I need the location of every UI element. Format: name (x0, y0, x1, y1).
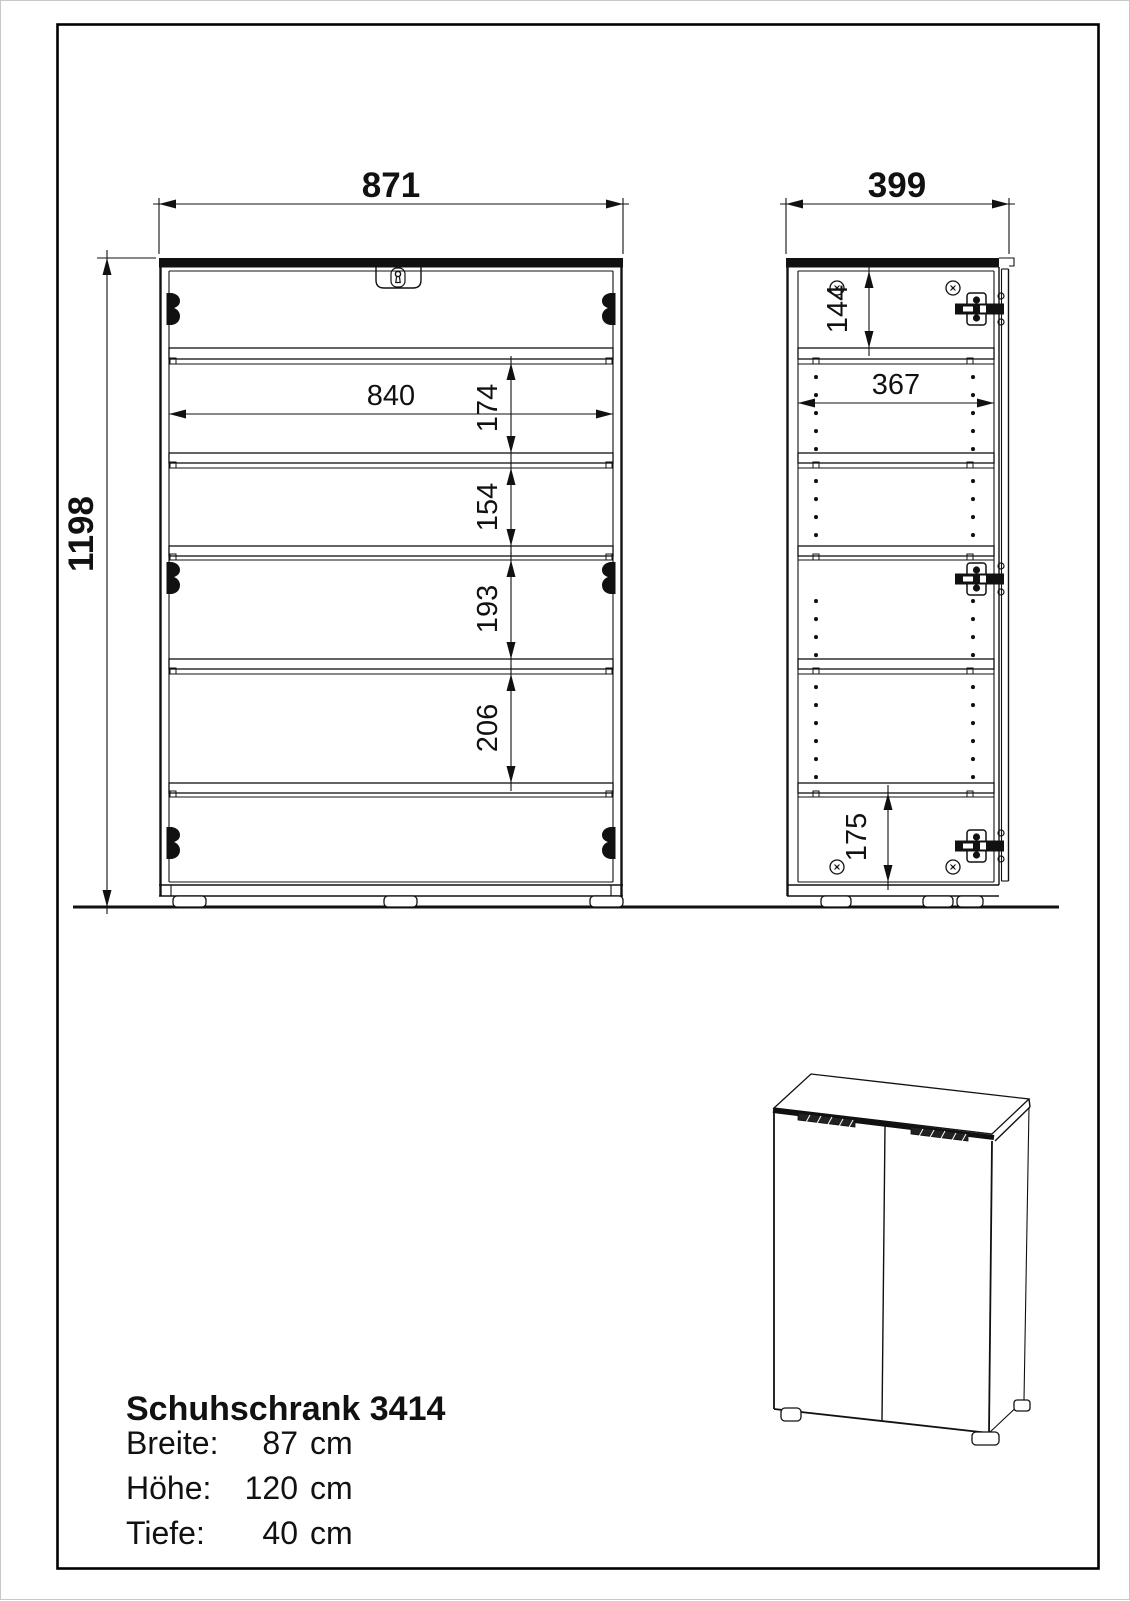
front-shelves (169, 348, 613, 793)
isometric-view (773, 1074, 1030, 1445)
dim-overall-depth-label: 399 (868, 166, 926, 205)
dim-top-compartment: 144 (822, 263, 874, 356)
side-hinges (955, 293, 1004, 862)
dim-compartment-chain: 174 154 193 206 (472, 356, 516, 791)
side-feet (821, 896, 983, 907)
side-shelves (798, 348, 994, 793)
title-block: Schuhschrank 3414 Breite: 87 cm Höhe: 12… (126, 1390, 445, 1551)
dim-bottom-compartment: 175 (841, 785, 893, 890)
spec-value-width: 87 (262, 1425, 298, 1461)
spec-label-width: Breite: (126, 1425, 218, 1461)
side-view (786, 258, 1014, 907)
dim-compartment-2-label: 174 (472, 384, 504, 432)
spec-value-height: 120 (245, 1470, 298, 1506)
spec-unit-width: cm (310, 1425, 353, 1461)
shelf-pin-hole-columns (816, 377, 973, 782)
dim-overall-width-label: 871 (362, 166, 420, 205)
spec-label-depth: Tiefe: (126, 1515, 205, 1551)
dim-top-compartment-label: 144 (822, 285, 854, 333)
dim-inner-depth-label: 367 (872, 369, 920, 401)
dim-inner-width: 840 (169, 380, 613, 419)
iso-door-gap (882, 1126, 885, 1421)
iso-feet (781, 1400, 1030, 1445)
dim-inner-width-label: 840 (367, 380, 415, 412)
technical-drawing-canvas: 871 1198 840 174 154 193 206 (1, 1, 1130, 1601)
drawing-sheet: 871 1198 840 174 154 193 206 (0, 0, 1130, 1600)
side-top-panel (786, 258, 999, 267)
front-shelf-pin-lines (169, 358, 613, 797)
front-view (159, 258, 623, 907)
dim-inner-depth: 367 (798, 369, 994, 408)
dim-overall-height: 1198 (62, 250, 156, 914)
dim-overall-height-label: 1198 (62, 496, 101, 572)
front-hinges (167, 293, 616, 859)
spec-label-height: Höhe: (126, 1470, 211, 1506)
spec-value-depth: 40 (262, 1515, 298, 1551)
dim-overall-depth: 399 (780, 166, 1015, 254)
dim-compartment-5-label: 206 (472, 704, 504, 752)
dim-compartment-4-label: 193 (472, 585, 504, 633)
front-feet (173, 896, 623, 907)
handle-recess (376, 267, 421, 288)
dim-overall-width: 871 (153, 166, 629, 254)
side-top-overhang (999, 258, 1014, 266)
spec-unit-height: cm (310, 1470, 353, 1506)
spec-unit-depth: cm (310, 1515, 353, 1551)
product-title: Schuhschrank 3414 (126, 1390, 445, 1428)
dim-compartment-3-label: 154 (472, 483, 504, 531)
front-top-panel (159, 258, 623, 267)
dim-bottom-compartment-label: 175 (841, 813, 873, 861)
